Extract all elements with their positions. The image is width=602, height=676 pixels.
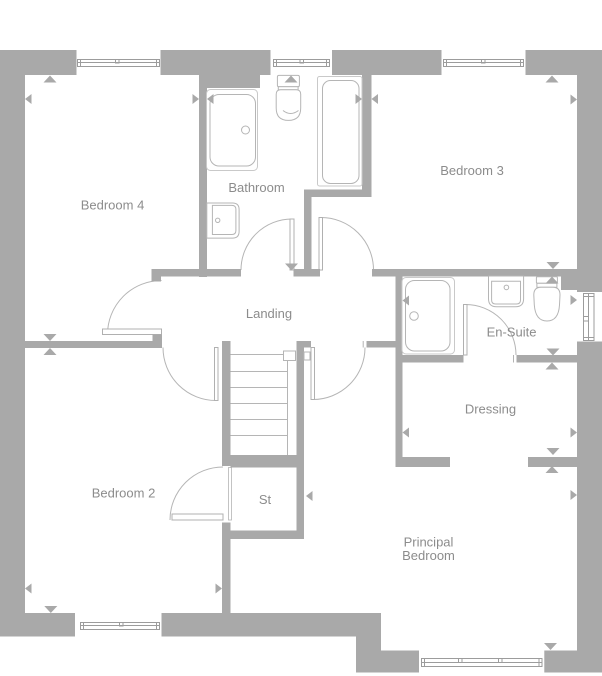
svg-text:En-Suite: En-Suite	[487, 325, 537, 340]
svg-text:Bedroom 4: Bedroom 4	[81, 198, 145, 213]
svg-text:Bedroom: Bedroom	[402, 548, 455, 563]
svg-text:Bedroom 2: Bedroom 2	[92, 486, 156, 501]
svg-text:Dressing: Dressing	[465, 402, 516, 417]
svg-text:Bathroom: Bathroom	[228, 180, 284, 195]
svg-text:Bedroom 3: Bedroom 3	[440, 163, 504, 178]
svg-text:Landing: Landing	[246, 306, 292, 321]
svg-text:St: St	[259, 492, 272, 507]
